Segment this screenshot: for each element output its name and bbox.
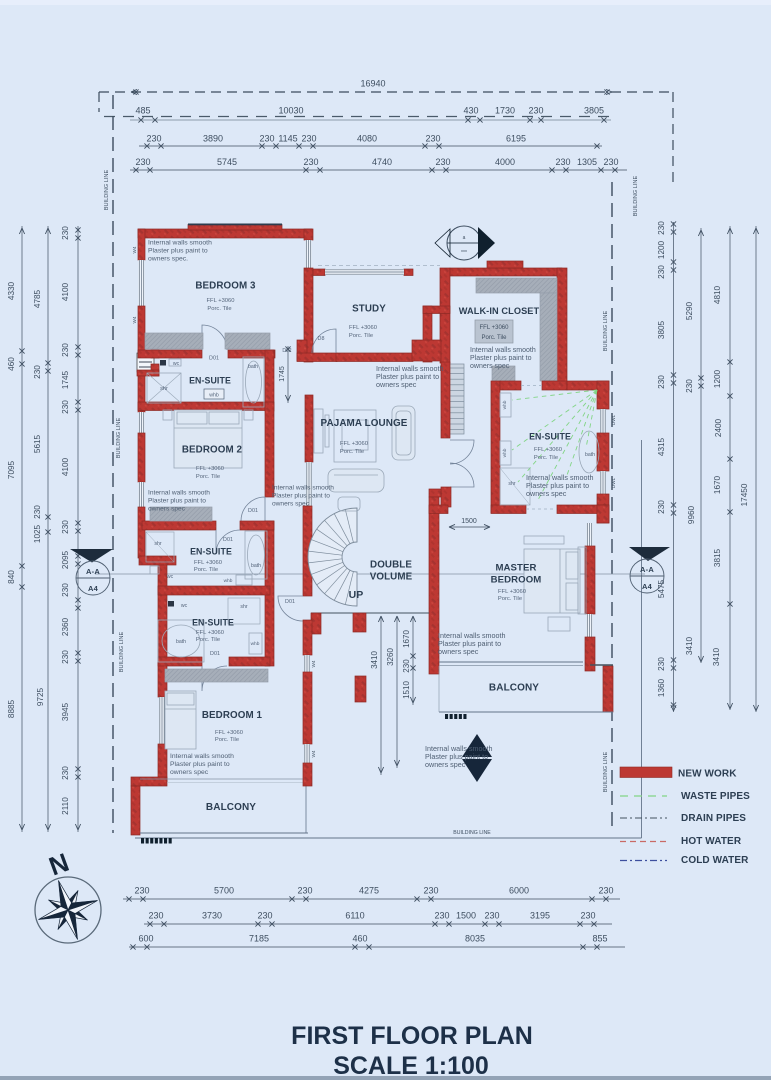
svg-text:1025: 1025 xyxy=(33,524,42,543)
svg-text:6195: 6195 xyxy=(506,134,526,144)
svg-text:whb: whb xyxy=(224,578,233,584)
svg-text:230: 230 xyxy=(603,157,618,167)
svg-text:FFL +3060: FFL +3060 xyxy=(196,630,224,636)
svg-text:3805: 3805 xyxy=(657,320,666,339)
svg-text:VOLUME: VOLUME xyxy=(370,572,413,583)
svg-text:230: 230 xyxy=(685,379,694,393)
svg-text:EN-SUITE: EN-SUITE xyxy=(190,547,232,557)
svg-text:FFL +3060: FFL +3060 xyxy=(498,589,526,595)
svg-text:600: 600 xyxy=(138,934,153,944)
svg-text:4315: 4315 xyxy=(657,437,666,456)
svg-text:230: 230 xyxy=(657,265,666,279)
svg-text:wc: wc xyxy=(173,361,180,367)
svg-text:D01: D01 xyxy=(223,537,233,543)
svg-text:whb: whb xyxy=(502,448,508,457)
svg-text:230: 230 xyxy=(402,659,411,673)
svg-text:shr: shr xyxy=(154,541,161,547)
svg-text:SCALE 1:100: SCALE 1:100 xyxy=(333,1052,489,1080)
svg-text:5290: 5290 xyxy=(685,301,694,320)
svg-text:D01: D01 xyxy=(285,599,295,605)
svg-text:EN-SUITE: EN-SUITE xyxy=(529,432,571,442)
svg-text:whb: whb xyxy=(502,400,508,409)
svg-text:4000: 4000 xyxy=(495,157,515,167)
svg-text:FFL +3060: FFL +3060 xyxy=(207,298,235,304)
svg-text:wc: wc xyxy=(167,574,174,580)
svg-text:230: 230 xyxy=(61,650,70,664)
svg-text:4330: 4330 xyxy=(7,281,16,300)
svg-text:BUILDING LINE: BUILDING LINE xyxy=(633,176,639,217)
svg-text:Porc. Tile: Porc. Tile xyxy=(481,335,507,341)
svg-text:FFL +3060: FFL +3060 xyxy=(215,730,243,736)
svg-text:3890: 3890 xyxy=(203,134,223,144)
svg-text:W4: W4 xyxy=(132,316,137,323)
svg-text:Internal walls smooth: Internal walls smooth xyxy=(148,240,212,247)
svg-text:owners spec.: owners spec. xyxy=(148,255,188,262)
svg-text:BUILDING LINE: BUILDING LINE xyxy=(603,752,609,793)
svg-text:7095: 7095 xyxy=(7,460,16,479)
svg-text:4100: 4100 xyxy=(61,282,70,301)
svg-text:16940: 16940 xyxy=(360,79,385,89)
svg-text:bath: bath xyxy=(251,563,261,569)
svg-text:BEDROOM 2: BEDROOM 2 xyxy=(182,445,243,456)
svg-text:230: 230 xyxy=(555,157,570,167)
svg-text:1745: 1745 xyxy=(279,366,286,382)
svg-text:BUILDING LINE: BUILDING LINE xyxy=(453,830,491,836)
svg-text:230: 230 xyxy=(135,157,150,167)
svg-text:9960: 9960 xyxy=(687,505,696,524)
svg-text:1360: 1360 xyxy=(657,678,666,697)
svg-text:4810: 4810 xyxy=(713,285,722,304)
svg-text:1305: 1305 xyxy=(577,157,597,167)
svg-text:9725: 9725 xyxy=(36,687,45,706)
svg-text:COLD WATER: COLD WATER xyxy=(681,855,749,866)
svg-text:230: 230 xyxy=(657,221,666,235)
svg-text:17450: 17450 xyxy=(740,483,749,506)
svg-text:4275: 4275 xyxy=(359,886,379,896)
svg-text:2110: 2110 xyxy=(61,797,70,815)
svg-text:D01: D01 xyxy=(248,508,258,514)
svg-text:A-A: A-A xyxy=(640,565,654,574)
svg-text:230: 230 xyxy=(425,134,440,144)
svg-text:wc: wc xyxy=(181,603,188,609)
svg-text:shr: shr xyxy=(240,604,247,610)
svg-text:230: 230 xyxy=(598,886,613,896)
svg-text:Internal walls smooth: Internal walls smooth xyxy=(470,347,536,354)
svg-text:4100: 4100 xyxy=(61,457,70,476)
svg-text:a: a xyxy=(463,235,466,241)
svg-text:EN-SUITE: EN-SUITE xyxy=(192,618,234,628)
svg-text:230: 230 xyxy=(257,911,272,921)
svg-text:840: 840 xyxy=(7,570,16,584)
svg-text:230: 230 xyxy=(657,375,666,389)
svg-text:owners spec: owners spec xyxy=(425,760,466,769)
svg-text:4080: 4080 xyxy=(357,134,377,144)
svg-text:Porc. Tile: Porc. Tile xyxy=(498,596,522,602)
svg-text:230: 230 xyxy=(61,343,70,357)
svg-text:430: 430 xyxy=(463,106,478,116)
svg-text:5745: 5745 xyxy=(217,157,237,167)
svg-text:D01: D01 xyxy=(209,356,219,362)
svg-text:1670: 1670 xyxy=(402,630,411,648)
svg-text:3410: 3410 xyxy=(370,651,379,669)
svg-text:230: 230 xyxy=(61,766,70,780)
svg-text:Internal walls smooth: Internal walls smooth xyxy=(272,485,334,492)
svg-text:Plaster plus paint to: Plaster plus paint to xyxy=(148,497,206,504)
svg-text:230: 230 xyxy=(484,911,499,921)
svg-text:230: 230 xyxy=(423,886,438,896)
svg-text:230: 230 xyxy=(148,911,163,921)
svg-text:Plaster plus paint to: Plaster plus paint to xyxy=(272,492,330,499)
svg-text:Plaster plus paint to: Plaster plus paint to xyxy=(170,761,230,768)
svg-text:BUILDING LINE: BUILDING LINE xyxy=(119,632,125,673)
svg-text:BUILDING LINE: BUILDING LINE xyxy=(104,170,110,211)
svg-text:BALCONY: BALCONY xyxy=(489,683,539,694)
svg-text:3410: 3410 xyxy=(685,636,694,655)
svg-text:FFL +3060: FFL +3060 xyxy=(196,466,224,472)
svg-text:6110: 6110 xyxy=(345,911,364,921)
svg-text:bath: bath xyxy=(248,364,258,370)
svg-text:owners spec: owners spec xyxy=(526,489,567,498)
svg-text:230: 230 xyxy=(33,505,42,519)
svg-text:shr: shr xyxy=(508,481,515,487)
svg-text:DW1: DW1 xyxy=(611,414,616,425)
svg-text:460: 460 xyxy=(7,357,16,371)
svg-text:NEW WORK: NEW WORK xyxy=(678,769,737,780)
svg-text:485: 485 xyxy=(135,106,150,116)
svg-text:230: 230 xyxy=(61,400,70,414)
svg-text:230: 230 xyxy=(528,106,543,116)
svg-text:1500: 1500 xyxy=(461,518,477,525)
svg-text:PAJAMA LOUNGE: PAJAMA LOUNGE xyxy=(321,418,408,429)
svg-text:1500: 1500 xyxy=(456,911,476,921)
svg-text:Porc. Tile: Porc. Tile xyxy=(194,567,218,573)
svg-text:FIRST FLOOR PLAN: FIRST FLOOR PLAN xyxy=(291,1022,533,1050)
svg-text:1200: 1200 xyxy=(713,369,722,388)
svg-text:230: 230 xyxy=(61,520,70,534)
svg-text:230: 230 xyxy=(657,657,666,671)
svg-text:230: 230 xyxy=(580,911,595,921)
svg-text:Plaster plus paint to: Plaster plus paint to xyxy=(470,355,532,362)
svg-text:1200: 1200 xyxy=(657,240,666,259)
svg-text:UP: UP xyxy=(349,589,364,601)
svg-text:BEDROOM 1: BEDROOM 1 xyxy=(202,710,263,721)
svg-text:1670: 1670 xyxy=(713,475,722,494)
svg-text:A4: A4 xyxy=(642,582,653,591)
svg-text:Porc. Tile: Porc. Tile xyxy=(349,333,373,339)
svg-text:owners spec: owners spec xyxy=(272,500,310,507)
svg-text:1145: 1145 xyxy=(278,134,297,144)
svg-text:owners spec: owners spec xyxy=(148,505,186,512)
svg-text:Porc. Tile: Porc. Tile xyxy=(215,737,239,743)
svg-text:Porc. Tile: Porc. Tile xyxy=(196,474,220,480)
svg-text:1745: 1745 xyxy=(61,370,70,389)
svg-text:D8: D8 xyxy=(318,336,325,342)
svg-text:BEDROOM 3: BEDROOM 3 xyxy=(195,281,256,292)
svg-text:230: 230 xyxy=(259,134,274,144)
svg-text:FFL +3060: FFL +3060 xyxy=(340,441,368,447)
svg-text:FFL +3060: FFL +3060 xyxy=(480,325,510,331)
svg-text:BUILDING LINE: BUILDING LINE xyxy=(603,311,609,352)
svg-text:7185: 7185 xyxy=(249,934,269,944)
svg-text:3805: 3805 xyxy=(584,106,604,116)
svg-text:shr: shr xyxy=(160,386,168,392)
svg-text:owners spec: owners spec xyxy=(438,647,479,656)
svg-text:BALCONY: BALCONY xyxy=(206,802,256,813)
svg-text:1730: 1730 xyxy=(495,106,515,116)
svg-text:Porc. Tile: Porc. Tile xyxy=(196,637,220,643)
svg-text:Internal walls smooth: Internal walls smooth xyxy=(170,753,234,760)
svg-text:W4: W4 xyxy=(132,246,137,253)
svg-text:HOT WATER: HOT WATER xyxy=(681,836,742,847)
svg-text:5615: 5615 xyxy=(33,434,42,453)
svg-text:3730: 3730 xyxy=(202,911,222,921)
svg-text:STUDY: STUDY xyxy=(352,304,386,315)
svg-text:owners spec: owners spec xyxy=(376,380,417,389)
svg-text:3815: 3815 xyxy=(713,548,722,567)
svg-text:whb: whb xyxy=(251,641,260,647)
svg-text:Porc. Tile: Porc. Tile xyxy=(534,455,558,461)
svg-text:A-A: A-A xyxy=(86,567,100,576)
svg-text:DOUBLE: DOUBLE xyxy=(370,560,412,571)
svg-text:W4: W4 xyxy=(311,660,316,667)
svg-text:230: 230 xyxy=(134,886,149,896)
svg-text:230: 230 xyxy=(61,226,70,240)
svg-text:855: 855 xyxy=(592,934,607,944)
svg-text:4740: 4740 xyxy=(372,157,392,167)
svg-text:460: 460 xyxy=(352,934,367,944)
svg-text:230: 230 xyxy=(297,886,312,896)
svg-text:owners spec: owners spec xyxy=(470,363,510,370)
svg-text:3410: 3410 xyxy=(712,647,721,666)
svg-text:FFL +3060: FFL +3060 xyxy=(194,560,222,566)
svg-text:1510: 1510 xyxy=(402,681,411,699)
svg-text:3945: 3945 xyxy=(61,702,70,721)
svg-text:Plaster plus paint to: Plaster plus paint to xyxy=(148,247,208,254)
svg-text:230: 230 xyxy=(435,157,450,167)
svg-text:230: 230 xyxy=(33,365,42,379)
svg-text:xxx: xxx xyxy=(461,248,467,253)
svg-text:DW1: DW1 xyxy=(611,477,616,488)
svg-text:Internal walls smooth: Internal walls smooth xyxy=(148,490,210,497)
svg-text:FFL +3060: FFL +3060 xyxy=(534,447,562,453)
svg-text:230: 230 xyxy=(301,134,316,144)
svg-text:EN-SUITE: EN-SUITE xyxy=(189,376,231,386)
svg-text:WASTE PIPES: WASTE PIPES xyxy=(681,791,750,802)
svg-text:230: 230 xyxy=(434,911,449,921)
svg-text:230: 230 xyxy=(303,157,318,167)
svg-text:230: 230 xyxy=(61,583,70,597)
svg-text:4785: 4785 xyxy=(33,289,42,308)
svg-text:3260: 3260 xyxy=(386,648,395,666)
svg-text:Porc. Tile: Porc. Tile xyxy=(207,306,231,312)
svg-text:2360: 2360 xyxy=(61,617,70,636)
svg-text:Porc. Tile: Porc. Tile xyxy=(340,449,364,455)
svg-text:bath: bath xyxy=(176,639,186,645)
svg-text:3195: 3195 xyxy=(530,911,550,921)
svg-text:10030: 10030 xyxy=(278,106,303,116)
svg-text:bath: bath xyxy=(585,452,595,458)
svg-text:whb: whb xyxy=(209,393,219,399)
svg-text:BUILDING LINE: BUILDING LINE xyxy=(116,418,122,459)
svg-text:230: 230 xyxy=(657,500,666,514)
svg-text:DRAIN PIPES: DRAIN PIPES xyxy=(681,813,746,824)
svg-text:2400: 2400 xyxy=(714,418,723,437)
svg-text:W4: W4 xyxy=(311,750,316,757)
svg-text:BEDROOM: BEDROOM xyxy=(491,575,542,586)
svg-text:8035: 8035 xyxy=(465,934,485,944)
svg-text:FFL +3060: FFL +3060 xyxy=(349,325,377,331)
svg-text:MASTER: MASTER xyxy=(495,563,536,574)
svg-text:230: 230 xyxy=(146,134,161,144)
svg-text:2095: 2095 xyxy=(61,550,70,569)
svg-text:A4: A4 xyxy=(88,584,99,593)
svg-text:owners spec: owners spec xyxy=(170,769,209,776)
svg-text:8885: 8885 xyxy=(7,699,16,718)
svg-text:WALK-IN CLOSET: WALK-IN CLOSET xyxy=(459,306,540,316)
svg-text:5700: 5700 xyxy=(214,886,234,896)
svg-text:6000: 6000 xyxy=(509,886,529,896)
svg-text:D01: D01 xyxy=(210,651,220,657)
